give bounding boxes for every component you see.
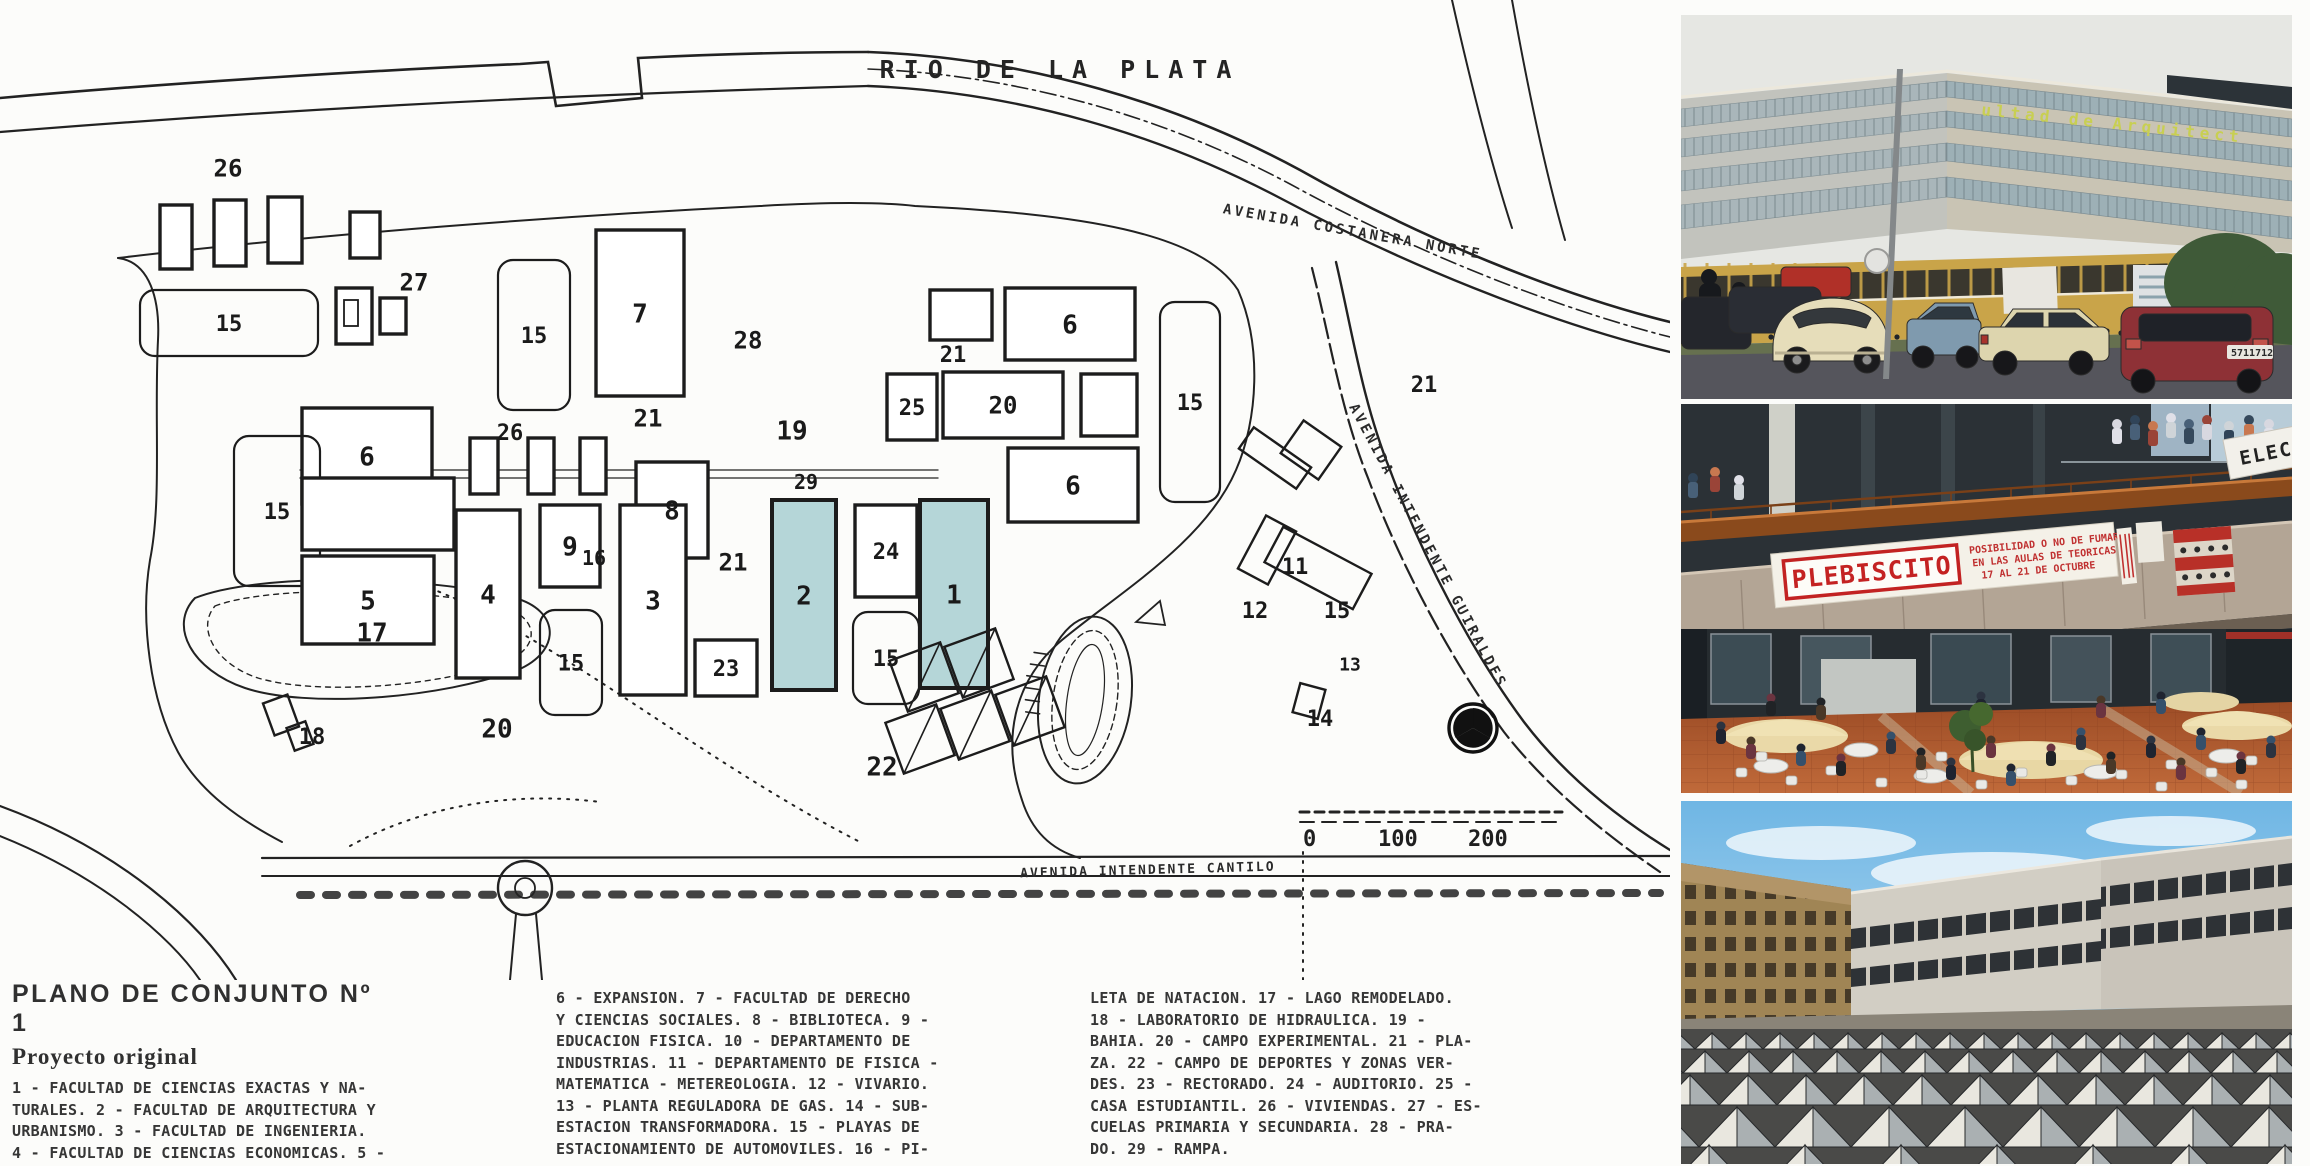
legend-line: EDUCACION FISICA. 10 - DEPARTAMENTO DE [556, 1031, 939, 1053]
legend-line: Y CIENCIAS SOCIALES. 8 - BIBLIOTECA. 9 - [556, 1010, 939, 1032]
plan-number-label: 5 [360, 586, 376, 616]
plan-number-label: 27 [400, 269, 429, 297]
plan-number-label: 20 [481, 714, 512, 744]
legend-line: ESTACIONAMIENTO DE AUTOMOVILES. 16 - PI- [556, 1139, 939, 1161]
plan-number-label: 2 [796, 581, 812, 611]
legend-line: 1 - FACULTAD DE CIENCIAS EXACTAS Y NA- [12, 1078, 385, 1100]
legend-line: 6 - EXPANSION. 7 - FACULTAD DE DERECHO [556, 988, 939, 1010]
plan-number-label: 21 [634, 405, 663, 433]
plan-number-label: 13 [1339, 654, 1361, 675]
legend-line: 13 - PLANTA REGULADORA DE GAS. 14 - SUB- [556, 1096, 939, 1118]
plan-number-label: 11 [1282, 555, 1309, 580]
plan-number-label: 6 [1062, 310, 1078, 340]
plan-number-label: 26 [214, 155, 243, 183]
plan-number-label: 26 [497, 421, 524, 446]
scale-label: 200 [1468, 827, 1508, 852]
posters [2173, 526, 2235, 596]
road-label: AVENIDA INTENDENTE CANTILO [1020, 860, 1276, 882]
legend-line: BAHIA. 20 - CAMPO EXPERIMENTAL. 21 - PLA… [1090, 1031, 1482, 1053]
photo-interior-plaza: PLEBISCITO POSIBILIDAD O NO DE FUMAR EN … [1681, 404, 2292, 793]
plan-number-label: 28 [734, 327, 763, 355]
scanned-document-page: 2627151572819626218162915549153212322415… [0, 0, 2310, 1166]
plan-building [930, 290, 992, 340]
plan-building [1239, 427, 1311, 488]
plan-number-label: 24 [873, 540, 900, 565]
plan-building [1281, 420, 1342, 479]
site-plan: 2627151572819626218162915549153212322415… [0, 0, 1670, 980]
plan-number-label: 8 [664, 496, 680, 526]
plan-building [380, 298, 406, 334]
plan-number-label: 9 [562, 532, 578, 562]
plan-number-label: 15 [1324, 599, 1351, 624]
north-arrow-icon [1446, 704, 1497, 755]
legend-line: CUELAS PRIMARIA Y SECUNDARIA. 28 - PRA- [1090, 1117, 1482, 1139]
plan-number-label: 15 [216, 312, 243, 337]
license-plate: 5711712 [2231, 348, 2273, 359]
plan-number-label: 22 [866, 752, 897, 782]
photo-courtyard-skylights [1681, 801, 2292, 1164]
plan-number-label: 21 [940, 343, 967, 368]
plan-number-label: 15 [1177, 391, 1204, 416]
plan-building [268, 197, 302, 263]
legend-subtitle: Proyecto original [12, 1044, 385, 1070]
street-sign [1865, 249, 1889, 273]
scale-label: 100 [1378, 827, 1418, 852]
plan-building [263, 695, 299, 736]
legend-line: TURALES. 2 - FACULTAD DE ARQUITECTURA Y [12, 1100, 385, 1122]
plan-building [470, 438, 498, 494]
plan-building [528, 438, 554, 494]
plan-number-label: 16 [582, 546, 606, 570]
legend-line: INDUSTRIAS. 11 - DEPARTAMENTO DE FISICA … [556, 1053, 939, 1075]
legend-line: URBANISMO. 3 - FACULTAD DE INGENIERIA. [12, 1121, 385, 1143]
legend-line: ESTACION TRANSFORMADORA. 15 - PLAYAS DE [556, 1117, 939, 1139]
plan-number-label: 17 [356, 618, 387, 648]
legend-line: 4 - FACULTAD DE CIENCIAS ECONOMICAS. 5 - [12, 1143, 385, 1165]
plan-number-label: 29 [794, 470, 818, 494]
plan-number-label: 4 [480, 580, 496, 610]
legend-column-2: 6 - EXPANSION. 7 - FACULTAD DE DERECHOY … [556, 988, 939, 1160]
plan-building [580, 438, 606, 494]
legend-line: CASA ESTUDIANTIL. 26 - VIVIENDAS. 27 - E… [1090, 1096, 1482, 1118]
plan-building [350, 212, 380, 258]
plan-number-label: 23 [713, 657, 740, 682]
legend-title: PLANO DE CONJUNTO Nº 1 [12, 980, 385, 1038]
legend-column-3: LETA DE NATACION. 17 - LAGO REMODELADO.1… [1090, 988, 1482, 1160]
plan-building [1264, 527, 1371, 609]
plan-building [214, 200, 246, 266]
plan-number-label: 14 [1307, 707, 1334, 732]
plan-number-label: 21 [1411, 373, 1438, 398]
legend-line: DO. 29 - RAMPA. [1090, 1139, 1482, 1161]
plan-number-label: 25 [899, 396, 926, 421]
plan-building [344, 300, 358, 326]
plan-number-label: 19 [776, 416, 807, 446]
river-label: RIO DE LA PLATA [880, 55, 1241, 84]
plan-number-label: 15 [873, 647, 900, 672]
plan-number-label: 6 [359, 442, 375, 472]
scale-label: 0 [1303, 827, 1316, 852]
plan-number-label: 3 [645, 586, 661, 616]
plan-number-label: 1 [946, 580, 962, 610]
legend-line: 18 - LABORATORIO DE HIDRAULICA. 19 - [1090, 1010, 1482, 1032]
plan-number-label: 20 [989, 392, 1018, 420]
plan-number-label: 7 [632, 299, 648, 329]
legend-line: LETA DE NATACION. 17 - LAGO REMODELADO. [1090, 988, 1482, 1010]
plan-number-label: 15 [558, 651, 585, 676]
plan-number-label: 6 [1065, 471, 1081, 501]
legend-line: DES. 23 - RECTORADO. 24 - AUDITORIO. 25 … [1090, 1074, 1482, 1096]
legend-line: MATEMATICA - METEREOLOGIA. 12 - VIVARIO. [556, 1074, 939, 1096]
plan-number-label: 21 [719, 549, 748, 577]
plan-number-label: 12 [1242, 599, 1269, 624]
plan-building [1081, 374, 1137, 436]
plan-building [302, 478, 454, 550]
road-label: AVENIDA INTENDENTE GUIRALDES [1345, 401, 1509, 691]
plan-number-label: 18 [299, 725, 326, 750]
legend-column-1: PLANO DE CONJUNTO Nº 1 Proyecto original… [12, 980, 385, 1166]
plan-building [160, 205, 192, 269]
road-label: AVENIDA COSTANERA NORTE [1222, 201, 1484, 262]
photo-faculty-building-street: ultad de Arquitect [1681, 15, 2292, 399]
plan-number-label: 15 [521, 324, 548, 349]
legend-line: ZA. 22 - CAMPO DE DEPORTES Y ZONAS VER- [1090, 1053, 1482, 1075]
site-plan-drawing: 2627151572819626218162915549153212322415… [0, 0, 1670, 980]
plan-number-label: 15 [264, 500, 291, 525]
